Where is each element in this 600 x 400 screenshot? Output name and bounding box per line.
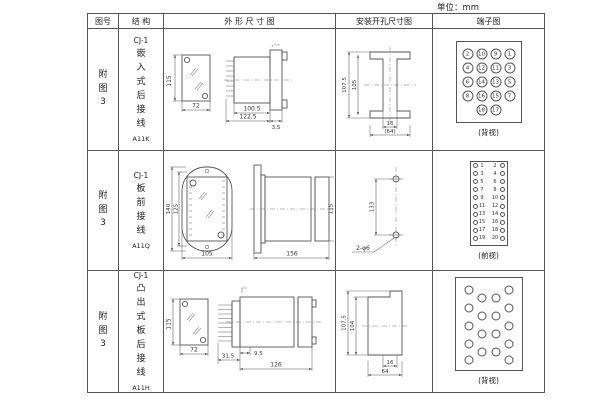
structure-row1: CJ-1 嵌入式后接线 A11K: [119, 29, 164, 151]
dim-slot-width: 16: [387, 121, 394, 127]
type-code-label: A11H: [132, 384, 150, 392]
install-svg-row3: 107.5 104 16 64: [338, 277, 430, 387]
structure-row2: CJ-1 板前接线 A11Q: [119, 151, 164, 271]
model-label: CJ-1: [134, 171, 149, 180]
mount-type-label: 板前接线: [136, 183, 145, 239]
terminal-cell-row2: 1234567891011121314151617181920 (前视): [433, 151, 544, 271]
dim-body-length: 126: [270, 361, 282, 368]
terminal-box-rear-view: [455, 277, 523, 371]
shine-mark: [190, 68, 198, 76]
dim-cutout-h2: 104: [350, 320, 356, 331]
header-install-holes: 安装开孔尺寸图: [336, 14, 433, 29]
terminal-pin: 14: [476, 77, 487, 88]
dim-front-height: 115: [166, 318, 173, 330]
terminal-pin: 17: [490, 105, 501, 116]
terminal-pin: [504, 322, 513, 331]
outline-svg-row1: 115 72 100.5: [166, 37, 334, 143]
shine-mark: [187, 313, 195, 321]
terminal-view-label: (背视): [478, 127, 499, 138]
terminal-pin: 6: [462, 77, 473, 88]
dim-cutout-h1: 107.5: [342, 314, 348, 330]
terminal-pin: [477, 294, 486, 303]
terminal-strip-row: 1112: [471, 202, 507, 210]
dim-front-width: 72: [190, 346, 198, 353]
front-view: 140 125 105: [166, 167, 232, 260]
terminal-pin: [491, 294, 500, 303]
terminal-pin: [464, 340, 473, 349]
dim-flange: 9.5: [254, 351, 263, 357]
terminal-strip-row: 78: [471, 186, 507, 194]
terminal-box-rear-view: 210914121136141358161571817: [456, 41, 522, 123]
shine-mark: [206, 210, 214, 218]
terminal-pin: 12: [476, 63, 487, 74]
terminal-pin: [491, 348, 500, 357]
terminal-pin: [477, 330, 486, 339]
figure-no-row2: 附图3: [88, 151, 119, 271]
dim-hole-spacing: 133: [370, 201, 376, 212]
terminal-strip-row: 12: [471, 162, 507, 170]
side-view: 100.5 122.5 3.5: [224, 44, 292, 131]
terminal-pin: 10: [476, 49, 487, 60]
front-view: 115 72: [166, 299, 208, 356]
install-svg-row1: 107.5 105 16 (64): [338, 36, 430, 144]
terminal-strip-row: 1314: [471, 210, 507, 218]
mount-type-label: 凸出式板后接线: [136, 283, 145, 381]
dim-side-length: 156: [286, 250, 298, 257]
side-view: 115 156: [250, 165, 334, 260]
terminal-pin: [464, 356, 473, 365]
dim-cutout-width: (64): [384, 129, 395, 135]
terminal-pin: 4: [462, 63, 473, 74]
front-view: 115 72: [166, 55, 210, 112]
header-terminal-diagram: 端子图: [433, 14, 544, 29]
terminal-pin: 16: [476, 91, 487, 102]
install-drawing-row1: 107.5 105 16 (64): [336, 29, 433, 151]
type-code-label: A11Q: [132, 242, 150, 250]
figure-no-text: 附图3: [98, 190, 107, 232]
terminal-box-front-view: 1234567891011121314151617181920: [470, 161, 508, 246]
install-drawing-row3: 107.5 104 16 64: [336, 271, 433, 392]
outline-drawing-row2: 140 125 105 115: [164, 151, 336, 271]
terminal-strip-row: 1516: [471, 218, 507, 226]
terminal-view-label: (前视): [478, 250, 499, 261]
terminal-pin: 1: [504, 49, 515, 60]
model-label: CJ-1: [134, 36, 149, 45]
terminal-pin: 7: [504, 91, 515, 102]
terminal-pin: [504, 286, 513, 295]
header-outline-dimensions: 外 形 尺 寸 图: [164, 14, 336, 29]
terminal-pin: 3: [504, 63, 515, 74]
terminal-strip-row: 56: [471, 178, 507, 186]
side-view: 31.5 9.5 126: [218, 288, 322, 371]
outline-drawing-row1: 115 72 100.5: [164, 29, 336, 151]
hook-mark: [242, 288, 247, 293]
dim-depth-1: 100.5: [243, 105, 260, 112]
dim-cutout-h1: 107.5: [342, 76, 348, 92]
dim-front-width: 72: [192, 102, 200, 109]
terminal-pin: [464, 286, 473, 295]
cutout-shape: [368, 291, 402, 355]
dim-cutout-width: 64: [382, 369, 389, 375]
dim-plate-width: 105: [201, 250, 213, 257]
dim-side-height: 115: [328, 203, 334, 214]
terminal-cell-row3: (背视): [433, 271, 544, 392]
dim-pin-length: 31.5: [221, 353, 234, 359]
shine-mark: [193, 327, 201, 335]
dim-slot-width: 16: [387, 360, 394, 366]
terminal-pin: [504, 304, 513, 313]
clamp-mark: [272, 44, 280, 47]
dimension-table: 图号 结 构 外 形 尺 寸 图 安装开孔尺寸图 端子图 附图3 CJ-1 嵌入…: [87, 13, 545, 393]
install-svg-row2: 133 2-φ6: [338, 157, 430, 265]
dim-depth-2: 122.5: [239, 113, 256, 120]
terminal-pin: 9: [490, 49, 501, 60]
dim-front-height: 115: [166, 75, 173, 87]
terminal-strip-row: 1718: [471, 226, 507, 234]
unit-label: 单位：mm: [437, 1, 479, 13]
model-label: CJ-1: [134, 271, 149, 280]
terminal-strip-row: 34: [471, 170, 507, 178]
terminal-pin: [464, 322, 473, 331]
figure-no-text: 附图3: [98, 69, 107, 111]
terminal-pin: [491, 312, 500, 321]
outline-svg-row2: 140 125 105 115: [166, 157, 334, 265]
terminal-pin: [504, 356, 513, 365]
terminal-pin: 15: [490, 91, 501, 102]
terminal-strip-row: 910: [471, 194, 507, 202]
terminal-pin: 18: [476, 105, 487, 116]
dim-plate-height: 140: [166, 203, 172, 214]
outline-svg-row3: 115 72 31.5: [166, 277, 334, 387]
figure-no-row1: 附图3: [88, 29, 119, 151]
hole-callout: 2-φ6: [356, 245, 370, 252]
dim-depth-3: 3.5: [271, 125, 280, 131]
structure-row3: CJ-1 凸出式板后接线 A11H: [119, 271, 164, 392]
outline-drawing-row3: 115 72 31.5: [164, 271, 336, 392]
terminal-pin: [464, 304, 473, 313]
terminal-view-label: (背视): [478, 375, 499, 386]
mount-type-label: 嵌入式后接线: [136, 48, 145, 132]
terminal-pin: [477, 348, 486, 357]
terminal-pin: 11: [490, 63, 501, 74]
header-figure-no: 图号: [88, 14, 119, 29]
dim-body-height: 125: [173, 203, 179, 214]
terminal-pin: [491, 330, 500, 339]
terminal-pin: 5: [504, 77, 515, 88]
terminal-pin: 8: [462, 91, 473, 102]
shine-mark: [199, 192, 207, 200]
terminal-strip-row: 1920: [471, 234, 507, 242]
header-structure: 结 构: [119, 14, 164, 29]
terminal-pin: [477, 312, 486, 321]
dim-cutout-h2: 105: [352, 79, 358, 90]
terminal-pin: 2: [462, 49, 473, 60]
shine-mark: [195, 82, 203, 90]
terminal-cell-row1: 210914121136141358161571817 (背视): [433, 29, 544, 151]
type-code-label: A11K: [133, 135, 150, 143]
figure-no-text: 附图3: [98, 311, 107, 353]
terminal-pin: [504, 340, 513, 349]
terminal-pin: 13: [490, 77, 501, 88]
install-drawing-row2: 133 2-φ6: [336, 151, 433, 271]
figure-no-row3: 附图3: [88, 271, 119, 392]
